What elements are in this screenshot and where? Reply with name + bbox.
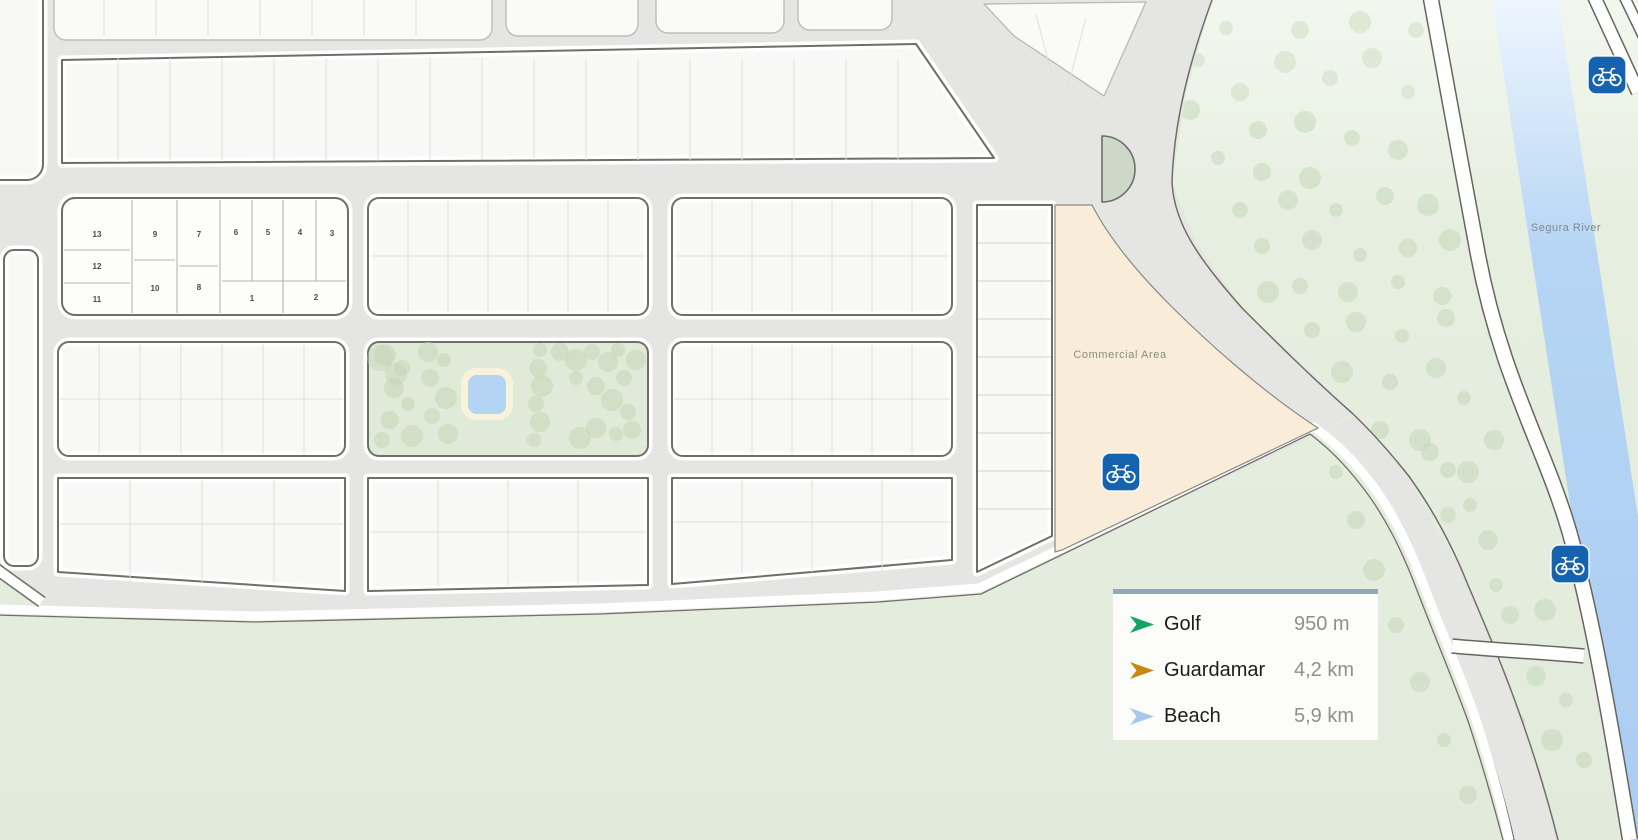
bicycle-sign-icon <box>1551 545 1589 583</box>
legend-item-label: Golf <box>1164 613 1294 636</box>
river-label: Segura River <box>1531 222 1601 234</box>
plot-number: 11 <box>93 295 102 304</box>
residential-block <box>368 198 648 315</box>
residential-block <box>672 198 952 315</box>
site-plan-map: 13 12 11 9 10 7 8 6 5 4 3 1 2 <box>0 0 1638 840</box>
direction-arrow-icon <box>1130 662 1154 679</box>
plot-number: 2 <box>314 293 319 302</box>
legend-item-guardamar: Guardamar 4,2 km <box>1130 647 1378 693</box>
legend-item-label: Guardamar <box>1164 659 1294 682</box>
plot-number: 13 <box>93 230 102 239</box>
pool <box>461 368 513 420</box>
legend-item-golf: Golf 950 m <box>1130 601 1378 647</box>
plot-number: 3 <box>330 229 335 238</box>
plot-number: 4 <box>298 228 303 237</box>
legend-item-label: Beach <box>1164 705 1294 728</box>
bicycle-sign-icon <box>1588 56 1626 94</box>
top-left-block <box>0 0 43 180</box>
left-tall-block <box>4 250 38 566</box>
legend-item-distance: 4,2 km <box>1294 659 1354 682</box>
plot-number: 8 <box>197 283 202 292</box>
park-block <box>367 342 648 456</box>
residential-block <box>368 478 648 591</box>
numbered-block: 13 12 11 9 10 7 8 6 5 4 3 1 2 <box>62 198 348 315</box>
plot-number: 5 <box>266 228 271 237</box>
plot-number: 1 <box>250 294 255 303</box>
plot-strip-block <box>62 44 994 163</box>
plot-number: 10 <box>151 284 160 293</box>
plot-number: 7 <box>197 230 202 239</box>
direction-arrow-icon <box>1130 616 1154 633</box>
direction-arrow-icon <box>1130 708 1154 725</box>
plot-number: 6 <box>234 228 239 237</box>
plot-number: 12 <box>93 262 102 271</box>
residential-block <box>672 478 952 584</box>
residential-block <box>58 342 345 456</box>
residential-block <box>672 342 952 456</box>
legend-item-distance: 5,9 km <box>1294 705 1354 728</box>
legend-item-distance: 950 m <box>1294 613 1350 636</box>
residential-block <box>58 478 345 591</box>
plot-number: 9 <box>153 230 158 239</box>
map-canvas: 13 12 11 9 10 7 8 6 5 4 3 1 2 <box>0 0 1638 840</box>
bicycle-sign-icon <box>1102 453 1140 491</box>
legend-item-beach: Beach 5,9 km <box>1130 693 1378 739</box>
distance-legend-panel: Golf 950 m Guardamar 4,2 km Beach 5,9 km <box>1113 589 1378 740</box>
strip-block <box>977 205 1052 572</box>
commercial-area-label: Commercial Area <box>1073 349 1167 361</box>
connector-path <box>1452 646 1584 656</box>
